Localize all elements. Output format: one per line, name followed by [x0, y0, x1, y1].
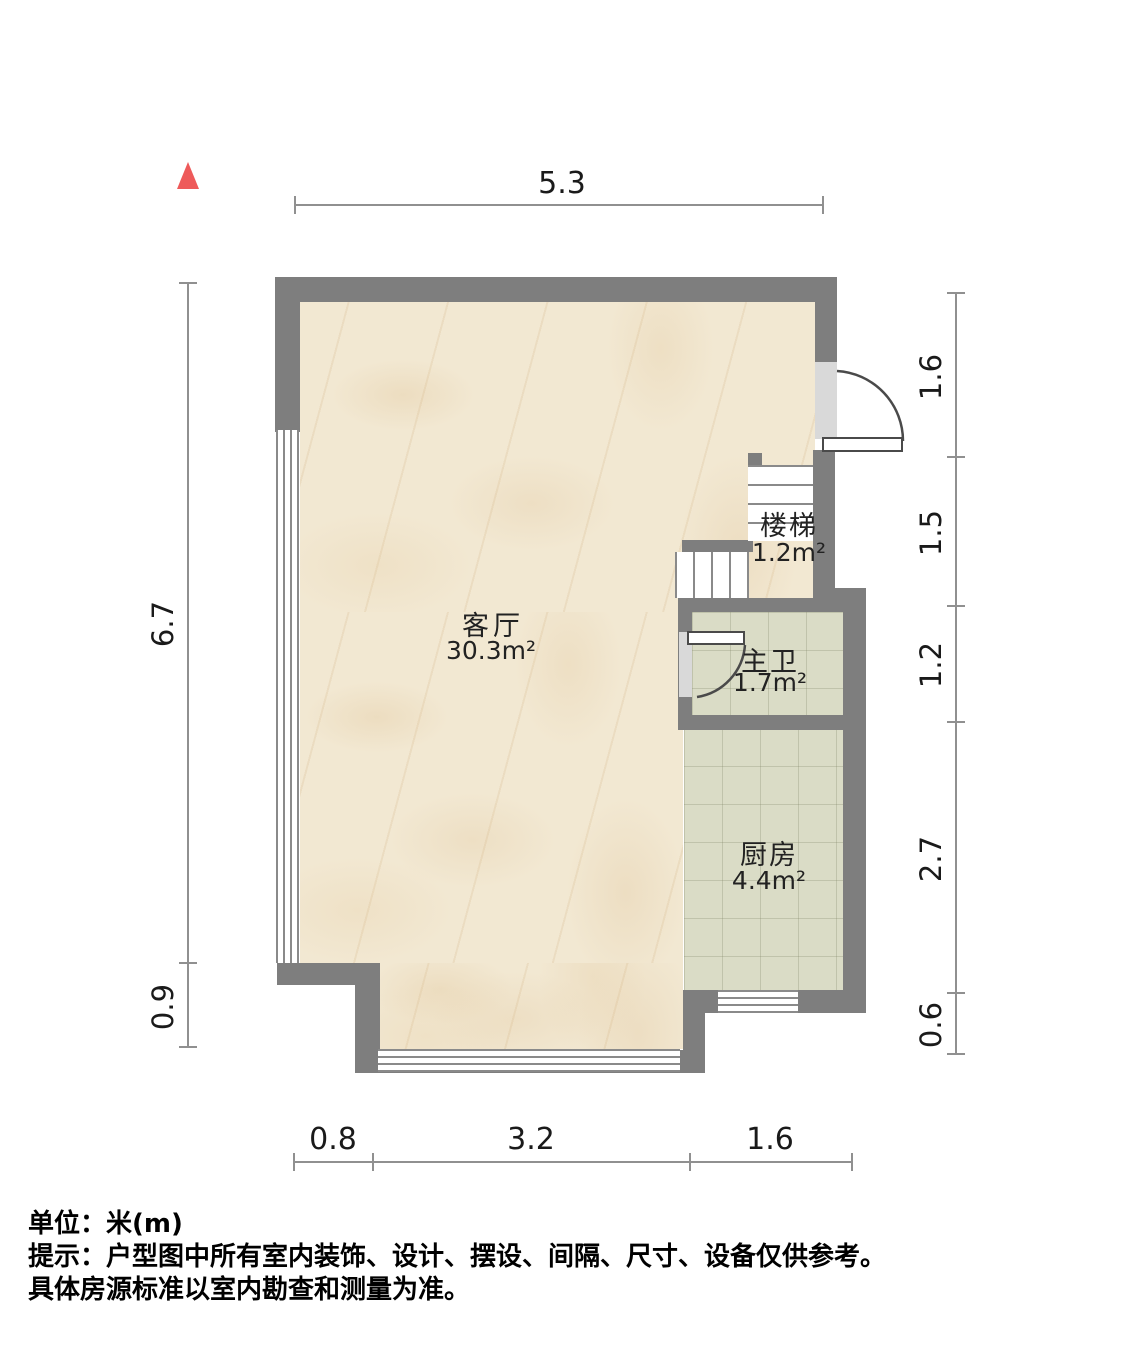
wall-left-upper: [275, 302, 300, 432]
dim-top-tick-end: [822, 196, 824, 214]
dim-bottom-label-2: 1.6: [730, 1122, 810, 1157]
dim-top-label: 5.3: [522, 166, 602, 201]
dim-right-tick-5: [947, 1053, 965, 1055]
dim-right-tick-0: [947, 292, 965, 294]
dim-right-line: [955, 293, 957, 1055]
dim-right-tick-2: [947, 605, 965, 607]
room-area-living: 30.3m²: [436, 636, 546, 665]
entry-door-leaf: [822, 437, 903, 452]
wall-bathroom-bottom: [678, 715, 866, 730]
wall-bathroom-top: [678, 598, 843, 612]
window-kitchen: [718, 990, 798, 1013]
dim-right-label-1: 1.5: [914, 503, 948, 563]
dim-bottom-label-1: 3.2: [491, 1122, 571, 1157]
dim-right-label-2: 1.2: [914, 635, 948, 695]
disclaimer-line-1: 提示：户型图中所有室内装饰、设计、摆设、间隔、尺寸、设备仅供参考。: [28, 1236, 886, 1273]
dim-top-tick-start: [294, 196, 296, 214]
dim-right-label-0: 1.6: [914, 347, 948, 407]
dim-left-line: [187, 283, 189, 1048]
wall-right-lower: [843, 588, 866, 1013]
unit-label: 单位：米(m): [28, 1203, 183, 1240]
north-arrow-icon: [177, 162, 199, 189]
dim-right-label-3: 2.7: [914, 829, 948, 889]
window-bottom: [378, 1049, 680, 1072]
entry-door-jamb: [815, 362, 837, 439]
window-left: [276, 430, 299, 963]
dim-left-tick-1: [179, 962, 197, 964]
room-area-stairs: 1.2m²: [734, 538, 844, 567]
wall-right-upper: [815, 302, 837, 362]
dim-left-label-1: 0.9: [146, 977, 180, 1037]
living-room-floor-bay: [380, 963, 683, 1049]
dim-top-line: [295, 204, 824, 206]
dim-bottom-tick-3: [851, 1153, 853, 1171]
disclaimer-line-2: 具体房源标准以室内勘查和测量为准。: [28, 1269, 470, 1306]
wall-bottom-left-step-h: [277, 963, 380, 985]
room-area-kitchen: 4.4m²: [714, 866, 824, 895]
dim-bottom-tick-2: [689, 1153, 691, 1171]
dim-left-label-0: 6.7: [146, 594, 180, 654]
room-area-bathroom: 1.7m²: [715, 668, 825, 697]
wall-top: [275, 277, 837, 302]
dim-right-label-4: 0.6: [914, 995, 948, 1055]
dim-right-tick-1: [947, 456, 965, 458]
dim-right-tick-4: [947, 992, 965, 994]
floorplan-canvas: 客厅 30.3m² 楼梯 1.2m² 主卫 1.7m² 厨房 4.4m² 5.3…: [0, 0, 1144, 1350]
dim-left-tick-2: [179, 1046, 197, 1048]
dim-right-tick-3: [947, 721, 965, 723]
entry-door-arc: [837, 371, 903, 441]
dim-bottom-label-0: 0.8: [293, 1122, 373, 1157]
dim-bottom-line: [294, 1161, 852, 1163]
dim-left-tick-0: [179, 282, 197, 284]
